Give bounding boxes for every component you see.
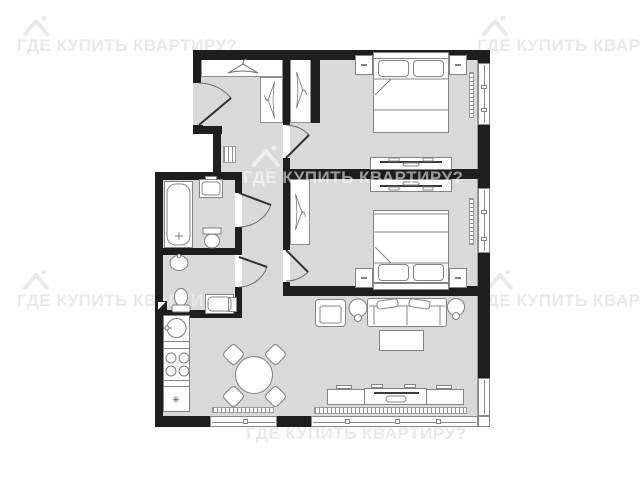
tv-stand-tab [404,384,416,388]
bed1-pillow-left [378,60,409,77]
wall-right-c [478,253,490,378]
tv-stand-tab [371,384,383,388]
wall-hall-horizontal [193,126,222,134]
kitchen-counter [163,315,190,412]
bedroom-1-wardrobe [290,57,311,123]
bed1-nightstand-left [355,55,373,75]
radiator-grille-hall [223,146,236,163]
tv-stand-center [364,388,427,405]
tv-stand-left [327,389,365,405]
bed2-pillow-left [378,264,409,281]
window-living-right [478,378,490,416]
window-tick [345,419,350,424]
coffee-table [379,330,424,351]
bedroom-1-floor [290,123,320,169]
bed1-nightstand-right [449,55,467,75]
wall-bathroom-wc-divider [155,248,242,255]
watermark-center: ГДЕ КУПИТЬ КВАРТИРУ? [243,168,463,188]
window-tick [481,210,487,214]
watermark-bottom: ГДЕ КУПИТЬ КВАРТИРУ? [246,424,466,444]
wall-bottom-left [155,416,210,427]
bedroom-2-wardrobe [290,179,310,245]
window-tick [243,419,248,424]
window-bedroom-2 [478,188,490,253]
wall-right-b [478,125,490,188]
window-tick [481,85,487,89]
wall-left [155,172,163,427]
watermark-top-right: ГДЕ КУПИТЬ КВАРТИРУ? [477,36,640,56]
counter-divider [164,341,189,342]
duct-box [228,297,237,312]
bed2-pillow-right [413,264,444,281]
wall-hall-left [193,50,201,83]
sofa [367,298,447,327]
coat-rack-shelf [201,58,283,77]
counter-divider [164,348,189,349]
dining-table [235,356,273,394]
bathtub-outer [164,181,193,248]
hall-closet [260,77,283,123]
bed2-nightstand-right [449,268,467,288]
window-tick [481,237,487,241]
counter-divider [164,386,189,387]
watermark-mid-right: ГДЕ КУПИТЬ КВАРТИРУ? [477,291,640,311]
radiator-bedroom-1 [469,72,474,118]
tv-stand-tab [336,385,352,389]
wall-closet-divider [283,50,290,125]
radiator-kitchen [212,407,274,413]
tv-stand-right [426,389,464,405]
window-tick [436,419,441,424]
radiator-bedroom-2 [469,198,474,245]
tv-stand-tab [436,385,452,389]
wall-bathroom-right-b [235,227,242,255]
floor-plan-canvas: ГДЕ КУПИТЬ КВАРТИРУ? ГДЕ КУПИТЬ КВАРТИРУ… [0,0,640,480]
armchair [315,299,346,327]
radiator-living [314,407,467,414]
bathroom-cabinet [199,179,223,198]
counter-divider [164,380,189,381]
bed2-nightstand-left [355,268,373,288]
bed2-headboard [373,283,449,290]
window-tick [481,108,487,112]
wall-right-a [478,50,490,63]
wall-bedroom1-west [311,50,320,123]
bed1-pillow-right [413,60,444,77]
cabinet-door [205,176,217,180]
window-tick [395,419,400,424]
wall-bottom-pier [277,416,311,427]
window-corner [478,416,490,427]
wall-bathroom-right-a [235,172,242,193]
corridor-floor [242,172,283,317]
entrance-doorway-floor [193,83,201,125]
window-bedroom-1 [478,63,490,125]
shaft-marker [157,301,167,311]
